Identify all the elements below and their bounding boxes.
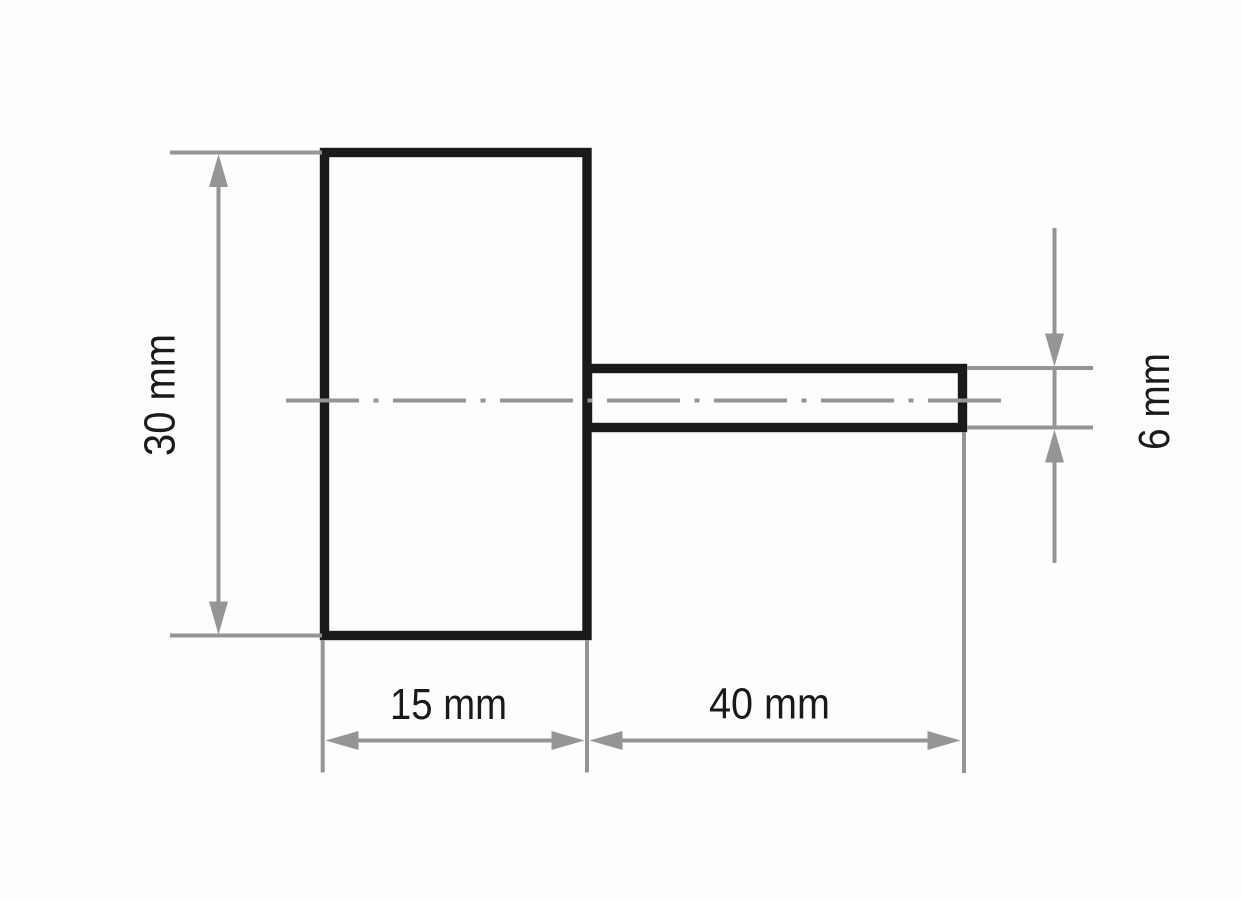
svg-text:6 mm: 6 mm	[1131, 353, 1179, 450]
svg-text:40 mm: 40 mm	[709, 681, 830, 729]
svg-text:30 mm: 30 mm	[137, 334, 185, 456]
svg-text:15 mm: 15 mm	[390, 681, 507, 729]
